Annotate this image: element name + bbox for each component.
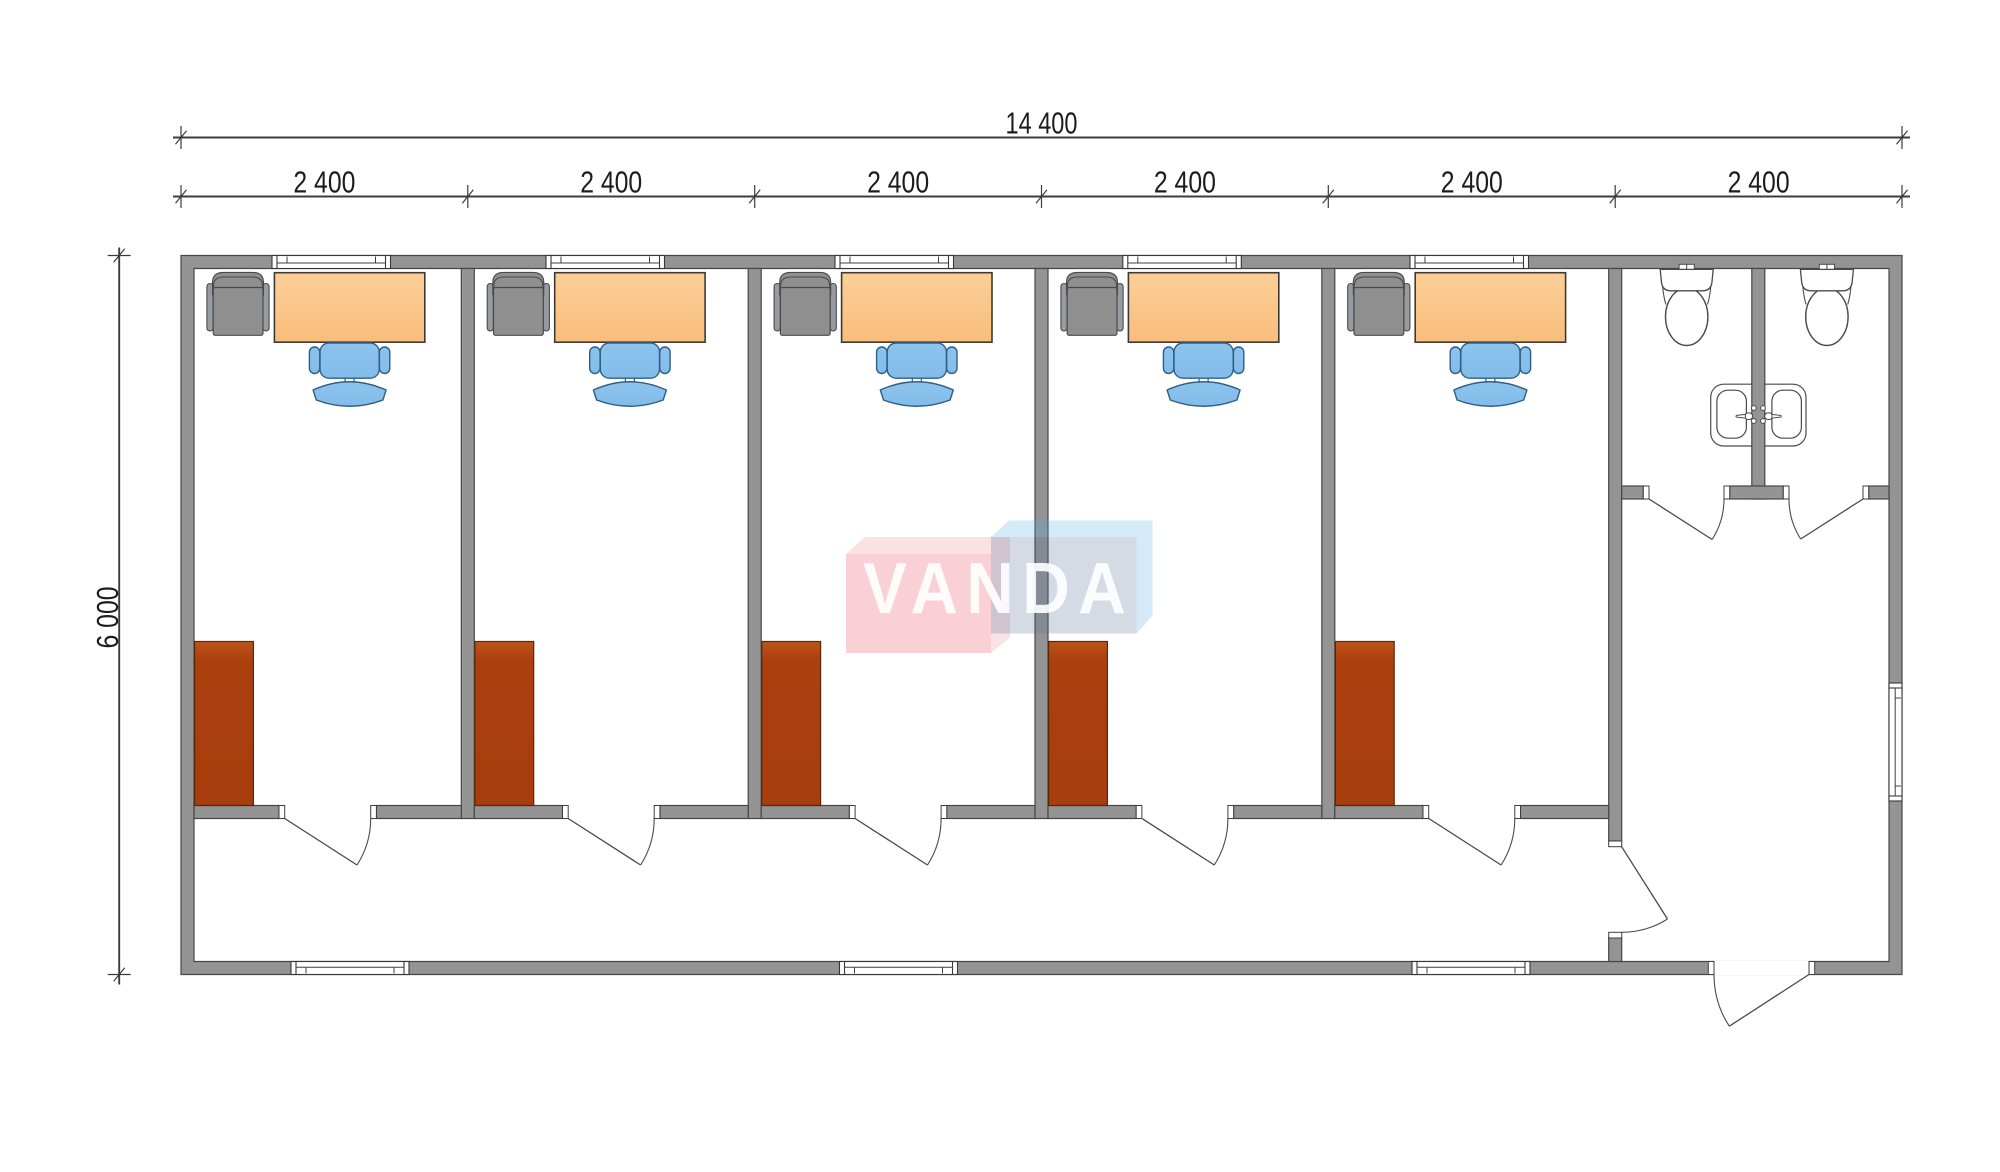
svg-text:6 000: 6 000	[90, 587, 125, 649]
svg-text:14 400: 14 400	[1006, 106, 1078, 141]
svg-text:VANDA: VANDA	[863, 549, 1134, 629]
svg-text:2 400: 2 400	[1441, 165, 1503, 200]
svg-text:2 400: 2 400	[1154, 165, 1216, 200]
svg-text:2 400: 2 400	[1728, 165, 1790, 200]
svg-text:2 400: 2 400	[293, 165, 355, 200]
svg-text:2 400: 2 400	[580, 165, 642, 200]
svg-text:2 400: 2 400	[867, 165, 929, 200]
